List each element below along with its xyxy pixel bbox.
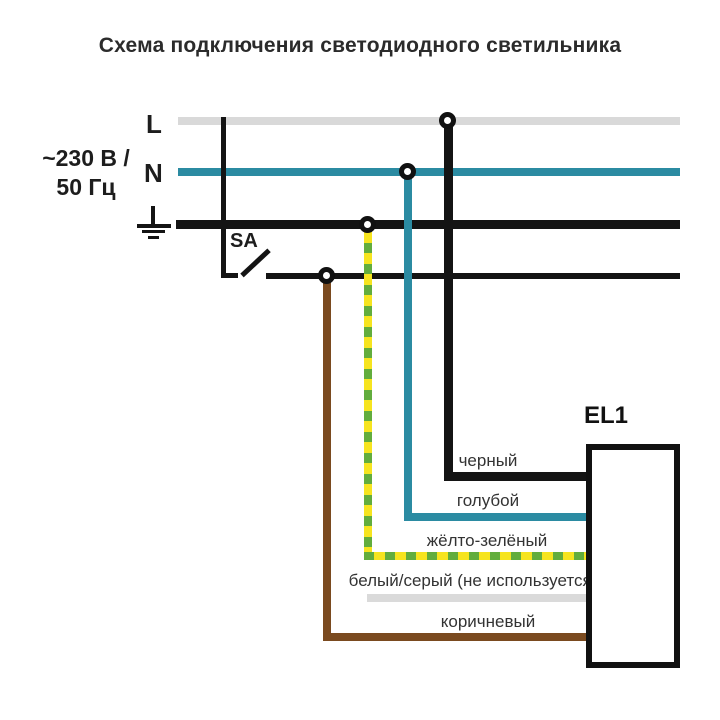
neutral-bus-label: N xyxy=(144,160,163,186)
neutral-bus-line xyxy=(178,168,680,176)
black-wire-vertical xyxy=(444,119,453,481)
ground-symbol-stem xyxy=(151,206,155,224)
phase-bus-line xyxy=(178,117,680,125)
switch-fixed-contact xyxy=(221,273,238,278)
power-rating-label: ~230 В / 50 Гц xyxy=(30,144,142,203)
yellow-green-wire-label: жёлто-зелёный xyxy=(427,532,547,549)
yellow-green-wire-vertical xyxy=(364,222,372,560)
brown-wire-label: коричневый xyxy=(441,613,535,630)
diagram-title: Схема подключения светодиодного светильн… xyxy=(0,34,720,58)
blue-wire-vertical xyxy=(404,170,412,521)
junction-node-neutral xyxy=(399,163,416,180)
blue-wire-horizontal xyxy=(404,513,596,521)
junction-node-switched xyxy=(318,267,335,284)
switch-feed-wire xyxy=(221,117,226,274)
ground-bus-line xyxy=(176,220,680,229)
switch-label: SA xyxy=(230,231,258,251)
ground-symbol-bar-mid xyxy=(142,230,165,233)
black-wire-horizontal xyxy=(444,472,596,481)
luminaire-box xyxy=(586,444,680,668)
brown-wire-horizontal xyxy=(323,633,596,641)
blue-wire-label: голубой xyxy=(457,492,519,509)
ground-symbol-bar-long xyxy=(137,224,171,228)
white-gray-wire-label: белый/серый (не используется) xyxy=(349,572,598,589)
white-gray-wire-horizontal xyxy=(367,594,596,602)
junction-node-ground xyxy=(359,216,376,233)
brown-wire-vertical xyxy=(323,275,331,641)
power-rating-line1: ~230 В / xyxy=(30,144,142,173)
ground-symbol-bar-short xyxy=(148,236,159,239)
junction-node-phase xyxy=(439,112,456,129)
wiring-diagram: Схема подключения светодиодного светильн… xyxy=(0,0,720,720)
phase-bus-label: L xyxy=(146,111,162,137)
luminaire-label: EL1 xyxy=(584,404,628,428)
power-rating-line2: 50 Гц xyxy=(30,173,142,202)
yellow-green-wire-horizontal xyxy=(364,552,596,560)
black-wire-label: черный xyxy=(459,452,518,469)
